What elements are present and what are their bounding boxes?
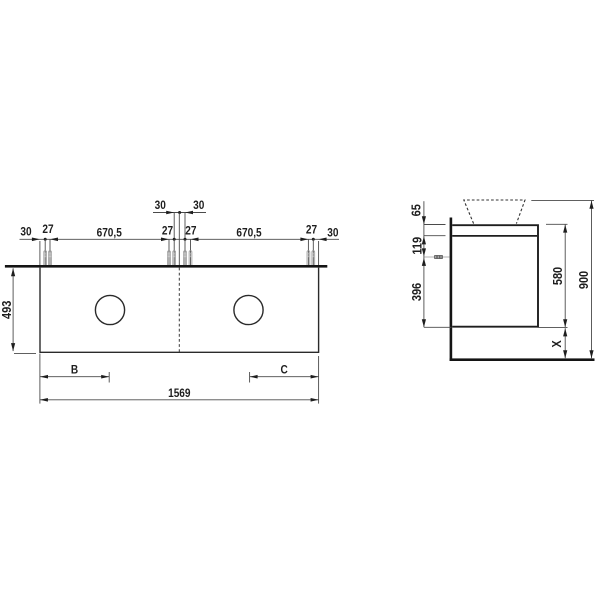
svg-text:27: 27 (42, 224, 53, 237)
svg-text:30: 30 (327, 227, 338, 240)
svg-text:670,5: 670,5 (236, 227, 261, 240)
svg-text:30: 30 (20, 226, 31, 239)
svg-text:B: B (71, 364, 78, 377)
svg-text:27: 27 (306, 224, 317, 237)
svg-text:C: C (281, 364, 288, 377)
svg-text:27: 27 (185, 225, 196, 238)
svg-text:27: 27 (162, 225, 173, 238)
svg-text:396: 396 (410, 282, 424, 301)
svg-text:X: X (550, 340, 564, 347)
svg-text:1569: 1569 (168, 387, 190, 400)
svg-text:670,5: 670,5 (97, 227, 122, 240)
svg-text:119: 119 (411, 237, 425, 255)
svg-text:900: 900 (577, 270, 591, 289)
svg-text:493: 493 (1, 300, 15, 319)
svg-text:65: 65 (410, 204, 424, 217)
svg-text:580: 580 (552, 266, 566, 285)
svg-text:30: 30 (155, 200, 166, 213)
svg-text:30: 30 (193, 200, 204, 213)
